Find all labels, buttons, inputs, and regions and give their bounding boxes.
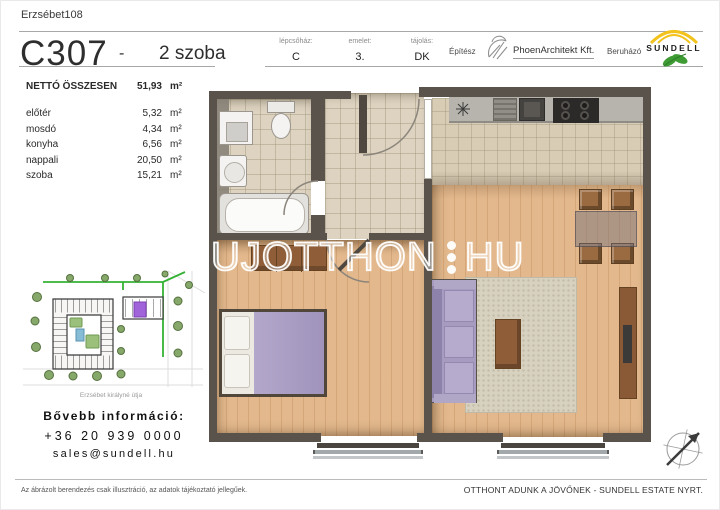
info-underline: [265, 66, 703, 67]
architect-logo-icon: [485, 33, 511, 61]
footer-slogan: OTTHONT ADUNK A JÖVŐNEK - SUNDELL ESTATE…: [371, 485, 703, 495]
street-caption: Erzsébet királyné útja: [15, 392, 207, 399]
developer-label: Beruházó: [607, 47, 641, 56]
contact-phone: +36 20 939 0000: [16, 429, 212, 443]
compass-icon: [657, 421, 709, 475]
contact-block: Bővebb információ: +36 20 939 0000 sales…: [16, 409, 212, 460]
info-col-staircase: lépcsőház: C: [267, 38, 325, 63]
info-col-orientation: tájolás: DK: [393, 38, 451, 63]
watermark-text-left: UJOTTHON: [211, 235, 437, 280]
footer-disclaimer: Az ábrázolt berendezés csak illusztráció…: [21, 487, 247, 494]
floorplan-sheet: Erzsébet108 C307 - 2 szoba lépcsőház: C …: [0, 0, 720, 510]
sundell-logo: SUNDELL: [641, 28, 707, 72]
contact-heading: Bővebb információ:: [16, 409, 212, 423]
unit-underline: [19, 66, 215, 67]
unit-separator: -: [119, 45, 124, 63]
floor-plan: [209, 83, 653, 485]
info-col-floor: emelet: 3.: [331, 38, 389, 63]
room-count: 2 szoba: [159, 43, 226, 65]
developer-name: SUNDELL: [641, 43, 707, 53]
watermark-text-right: HU: [465, 235, 525, 280]
unit-code: C307: [20, 34, 108, 74]
site-plan: [15, 269, 207, 391]
project-name: Erzsébet108: [21, 9, 83, 21]
contact-email: sales@sundell.hu: [16, 448, 212, 460]
watermark: UJOTTHON HU: [211, 233, 525, 281]
architect-name: PhoenArchitekt Kft.: [513, 45, 594, 59]
architect-label: Építész: [449, 47, 476, 56]
header-divider: [19, 31, 703, 32]
watermark-dots: [447, 241, 456, 274]
door-arcs: [209, 83, 653, 485]
